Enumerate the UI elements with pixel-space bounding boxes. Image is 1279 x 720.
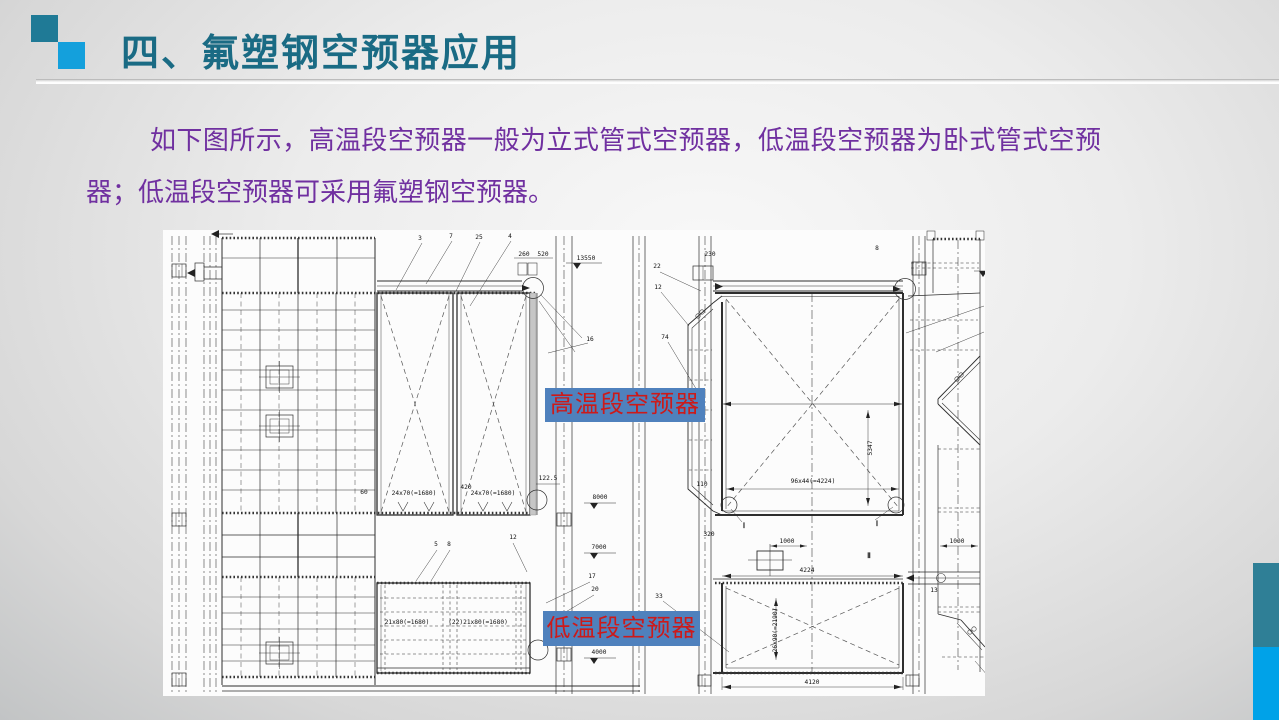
dim-text: 260 bbox=[518, 251, 529, 258]
dim-text: 4224 bbox=[800, 567, 815, 574]
title-separator-line bbox=[36, 79, 1279, 84]
dim-text: 21x80(=1680) bbox=[385, 619, 430, 626]
dim-text: 25 bbox=[475, 234, 483, 241]
dim-text: 7 bbox=[449, 233, 453, 240]
dim-text: 24x70(=1680) bbox=[392, 490, 437, 497]
presentation-slide: 四、氟塑钢空预器应用 如下图所示，高温段空预器一般为立式管式空预器，低温段空预器… bbox=[0, 0, 1279, 720]
right-side-duct bbox=[906, 231, 985, 676]
dim-text: 33 bbox=[655, 593, 663, 600]
body-paragraph: 如下图所示，高温段空预器一般为立式管式空预器，低温段空预器为卧式管式空预器；低温… bbox=[86, 114, 1101, 218]
edge-bar-teal bbox=[1253, 563, 1279, 647]
dim-text: 7000 bbox=[592, 544, 607, 551]
dim-text: 4000 bbox=[592, 649, 607, 656]
dim-text: 4 bbox=[508, 233, 512, 240]
dim-text: Ⅰ bbox=[876, 519, 878, 528]
high-temp-ap-left-view bbox=[377, 241, 582, 515]
dim-text: 22 bbox=[653, 263, 661, 270]
low-temp-ap-left-view bbox=[377, 543, 530, 673]
dim-text: 13 bbox=[930, 587, 938, 594]
dim-text: 3 bbox=[418, 235, 422, 242]
dim-text: 1000 bbox=[950, 538, 965, 545]
edge-bar-blue bbox=[1253, 647, 1279, 720]
dim-text: 4120 bbox=[805, 679, 820, 686]
manhole-symbol bbox=[259, 410, 300, 442]
dim-text: 520 bbox=[537, 251, 548, 258]
dim-text: 26x90(=2190) bbox=[772, 608, 779, 653]
manhole-symbol bbox=[259, 361, 300, 393]
dim-text: 110 bbox=[696, 481, 707, 488]
dim-text: 17 bbox=[588, 573, 596, 580]
dim-text: 96x44(=4224) bbox=[791, 478, 836, 485]
accent-square-back bbox=[31, 15, 58, 42]
dim-text: Ⅱ bbox=[867, 551, 871, 560]
dim-text: 230 bbox=[704, 251, 715, 258]
manhole-symbol bbox=[259, 637, 300, 669]
dim-text: 12 bbox=[509, 534, 517, 541]
slide-title: 四、氟塑钢空预器应用 bbox=[121, 22, 521, 77]
label-low-temp-ap: 低温段空预器 bbox=[543, 611, 700, 646]
dim-text: 16 bbox=[586, 336, 594, 343]
label-high-temp-ap: 高温段空预器 bbox=[545, 388, 705, 422]
dim-text: (22)21x80(=1680) bbox=[448, 619, 508, 626]
accent-square-front bbox=[58, 42, 85, 69]
dim-text: 8 bbox=[447, 541, 451, 548]
dim-text: 122.5 bbox=[539, 475, 558, 482]
dim-text: 12 bbox=[654, 284, 662, 291]
dim-text: 8000 bbox=[593, 494, 608, 501]
dim-text: 5347 bbox=[867, 440, 874, 455]
dim-text: 8 bbox=[875, 245, 879, 252]
dim-text: 5 bbox=[434, 541, 438, 548]
dim-text: 1000 bbox=[780, 538, 795, 545]
dim-text: 74 bbox=[661, 334, 669, 341]
dim-text: Ⅰ bbox=[743, 521, 745, 530]
dim-text: 320 bbox=[703, 531, 714, 538]
dim-text: 60 bbox=[360, 489, 368, 496]
elevation-flags bbox=[527, 263, 616, 664]
dim-text: 24x70(=1680) bbox=[471, 490, 516, 497]
dim-text: 20 bbox=[591, 586, 599, 593]
dim-text: 13550 bbox=[577, 255, 596, 262]
